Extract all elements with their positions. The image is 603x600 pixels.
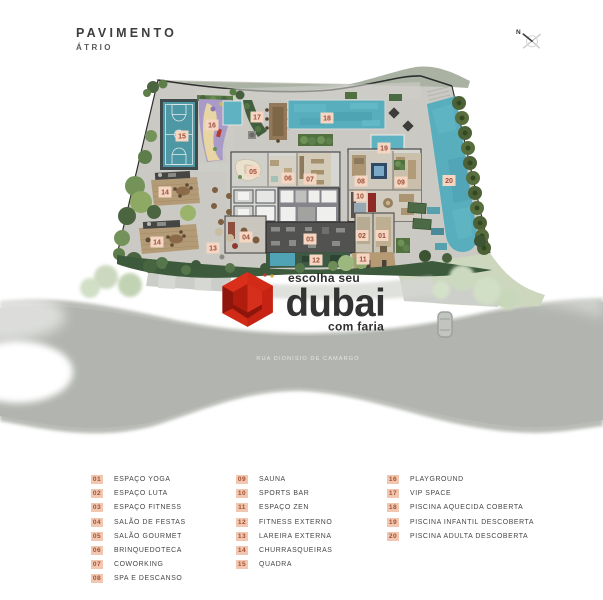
svg-text:13: 13 <box>209 246 217 253</box>
svg-text:07: 07 <box>306 177 314 184</box>
svg-text:15: 15 <box>178 134 186 141</box>
svg-text:16: 16 <box>208 123 216 130</box>
svg-text:01: 01 <box>378 233 386 240</box>
svg-text:20: 20 <box>445 178 453 185</box>
svg-text:19: 19 <box>380 146 388 153</box>
svg-text:09: 09 <box>397 180 405 187</box>
svg-text:02: 02 <box>358 233 366 240</box>
svg-text:12: 12 <box>312 258 320 265</box>
svg-text:RUA DIONISIO DE CAMARGO: RUA DIONISIO DE CAMARGO <box>256 356 359 362</box>
svg-text:05: 05 <box>249 169 257 176</box>
svg-text:11: 11 <box>359 257 367 264</box>
svg-text:04: 04 <box>242 235 250 242</box>
svg-text:06: 06 <box>284 176 292 183</box>
svg-text:18: 18 <box>323 116 331 123</box>
svg-text:com faria: com faria <box>328 320 384 334</box>
svg-text:14: 14 <box>153 240 161 247</box>
svg-text:10: 10 <box>356 194 364 201</box>
svg-text:14: 14 <box>161 190 169 197</box>
svg-text:08: 08 <box>357 179 365 186</box>
svg-text:03: 03 <box>306 237 314 244</box>
svg-text:17: 17 <box>253 115 261 122</box>
